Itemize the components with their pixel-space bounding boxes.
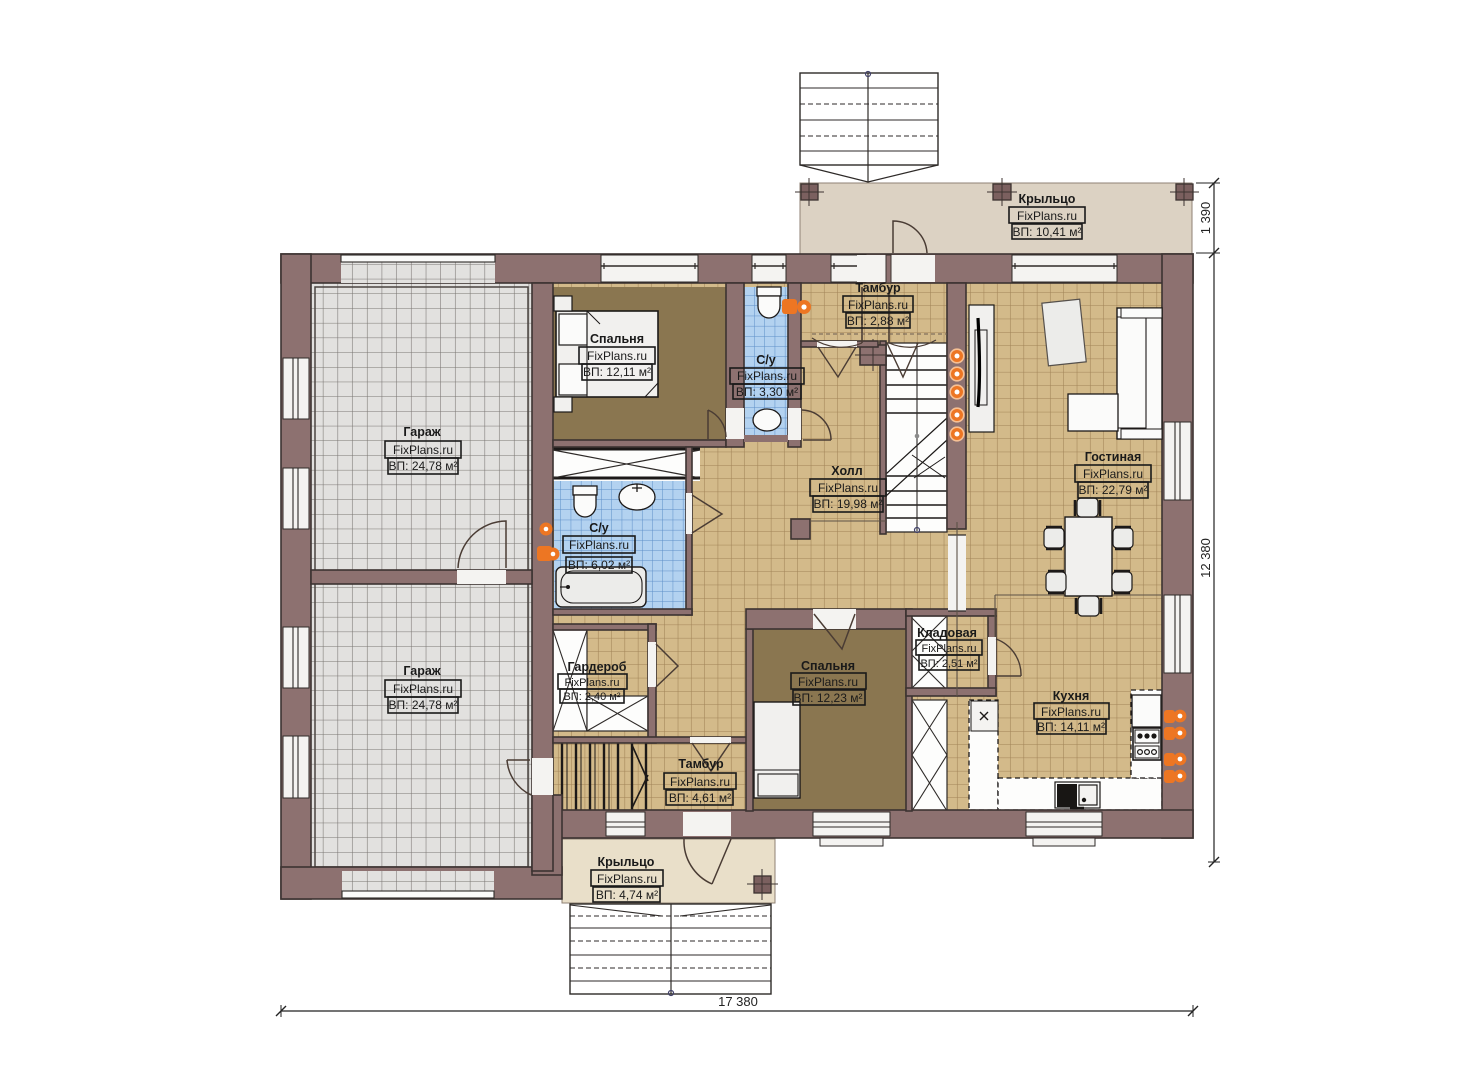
svg-text:17 380: 17 380 [718,994,758,1009]
svg-text:Спальня: Спальня [590,332,644,346]
svg-text:С/у: С/у [589,521,609,535]
svg-text:FixPlans.ru: FixPlans.ru [818,481,878,495]
svg-text:С/у: С/у [756,353,776,367]
svg-text:ВП: 2,51 м²: ВП: 2,51 м² [920,658,977,670]
svg-text:FixPlans.ru: FixPlans.ru [393,443,453,457]
svg-text:Кухня: Кухня [1053,689,1090,703]
svg-text:FixPlans.ru: FixPlans.ru [737,369,797,383]
svg-text:FixPlans.ru: FixPlans.ru [393,682,453,696]
svg-text:ВП: 10,41 м²: ВП: 10,41 м² [1013,225,1082,239]
svg-text:ВП: 2,88 м²: ВП: 2,88 м² [847,314,909,328]
svg-text:Холл: Холл [831,464,862,478]
svg-text:Тамбур: Тамбур [678,757,724,771]
svg-text:Гараж: Гараж [403,425,440,439]
svg-text:ВП: 22,79 м²: ВП: 22,79 м² [1079,483,1148,497]
svg-text:FixPlans.ru: FixPlans.ru [587,349,647,363]
svg-text:ВП: 6,02 м²: ВП: 6,02 м² [568,558,630,572]
svg-text:FixPlans.ru: FixPlans.ru [848,298,908,312]
svg-text:ВП: 4,61 м²: ВП: 4,61 м² [669,791,731,805]
svg-text:Гостиная: Гостиная [1085,450,1142,464]
svg-text:Крыльцо: Крыльцо [598,855,655,869]
svg-text:Гардероб: Гардероб [567,660,626,674]
svg-text:FixPlans.ru: FixPlans.ru [569,538,629,552]
svg-text:ВП: 12,23 м²: ВП: 12,23 м² [794,691,863,705]
svg-text:Кладовая: Кладовая [917,626,977,640]
svg-text:FixPlans.ru: FixPlans.ru [1041,705,1101,719]
svg-text:FixPlans.ru: FixPlans.ru [798,675,858,689]
svg-text:ВП: 24,78 м²: ВП: 24,78 м² [389,459,458,473]
svg-text:ВП: 19,98 м²: ВП: 19,98 м² [814,497,883,511]
svg-text:ВП: 3,30 м²: ВП: 3,30 м² [736,385,798,399]
svg-text:FixPlans.ru: FixPlans.ru [597,872,657,886]
svg-text:ВП: 4,74 м²: ВП: 4,74 м² [596,888,658,902]
svg-text:Тамбур: Тамбур [855,281,901,295]
svg-text:FixPlans.ru: FixPlans.ru [1017,209,1077,223]
svg-text:1 390: 1 390 [1198,202,1213,235]
svg-text:FixPlans.ru: FixPlans.ru [1083,467,1143,481]
svg-text:Крыльцо: Крыльцо [1019,192,1076,206]
svg-text:FixPlans.ru: FixPlans.ru [564,677,619,689]
svg-text:ВП: 2,40 м²: ВП: 2,40 м² [563,691,620,703]
svg-text:FixPlans.ru: FixPlans.ru [921,643,976,655]
svg-text:ВП: 14,11 м²: ВП: 14,11 м² [1037,720,1105,734]
svg-text:Спальня: Спальня [801,659,855,673]
svg-text:ВП: 24,78 м²: ВП: 24,78 м² [389,698,458,712]
svg-text:FixPlans.ru: FixPlans.ru [670,775,730,789]
svg-text:Гараж: Гараж [403,664,440,678]
svg-text:ВП: 12,11 м²: ВП: 12,11 м² [583,365,651,379]
svg-text:12 380: 12 380 [1198,538,1213,578]
